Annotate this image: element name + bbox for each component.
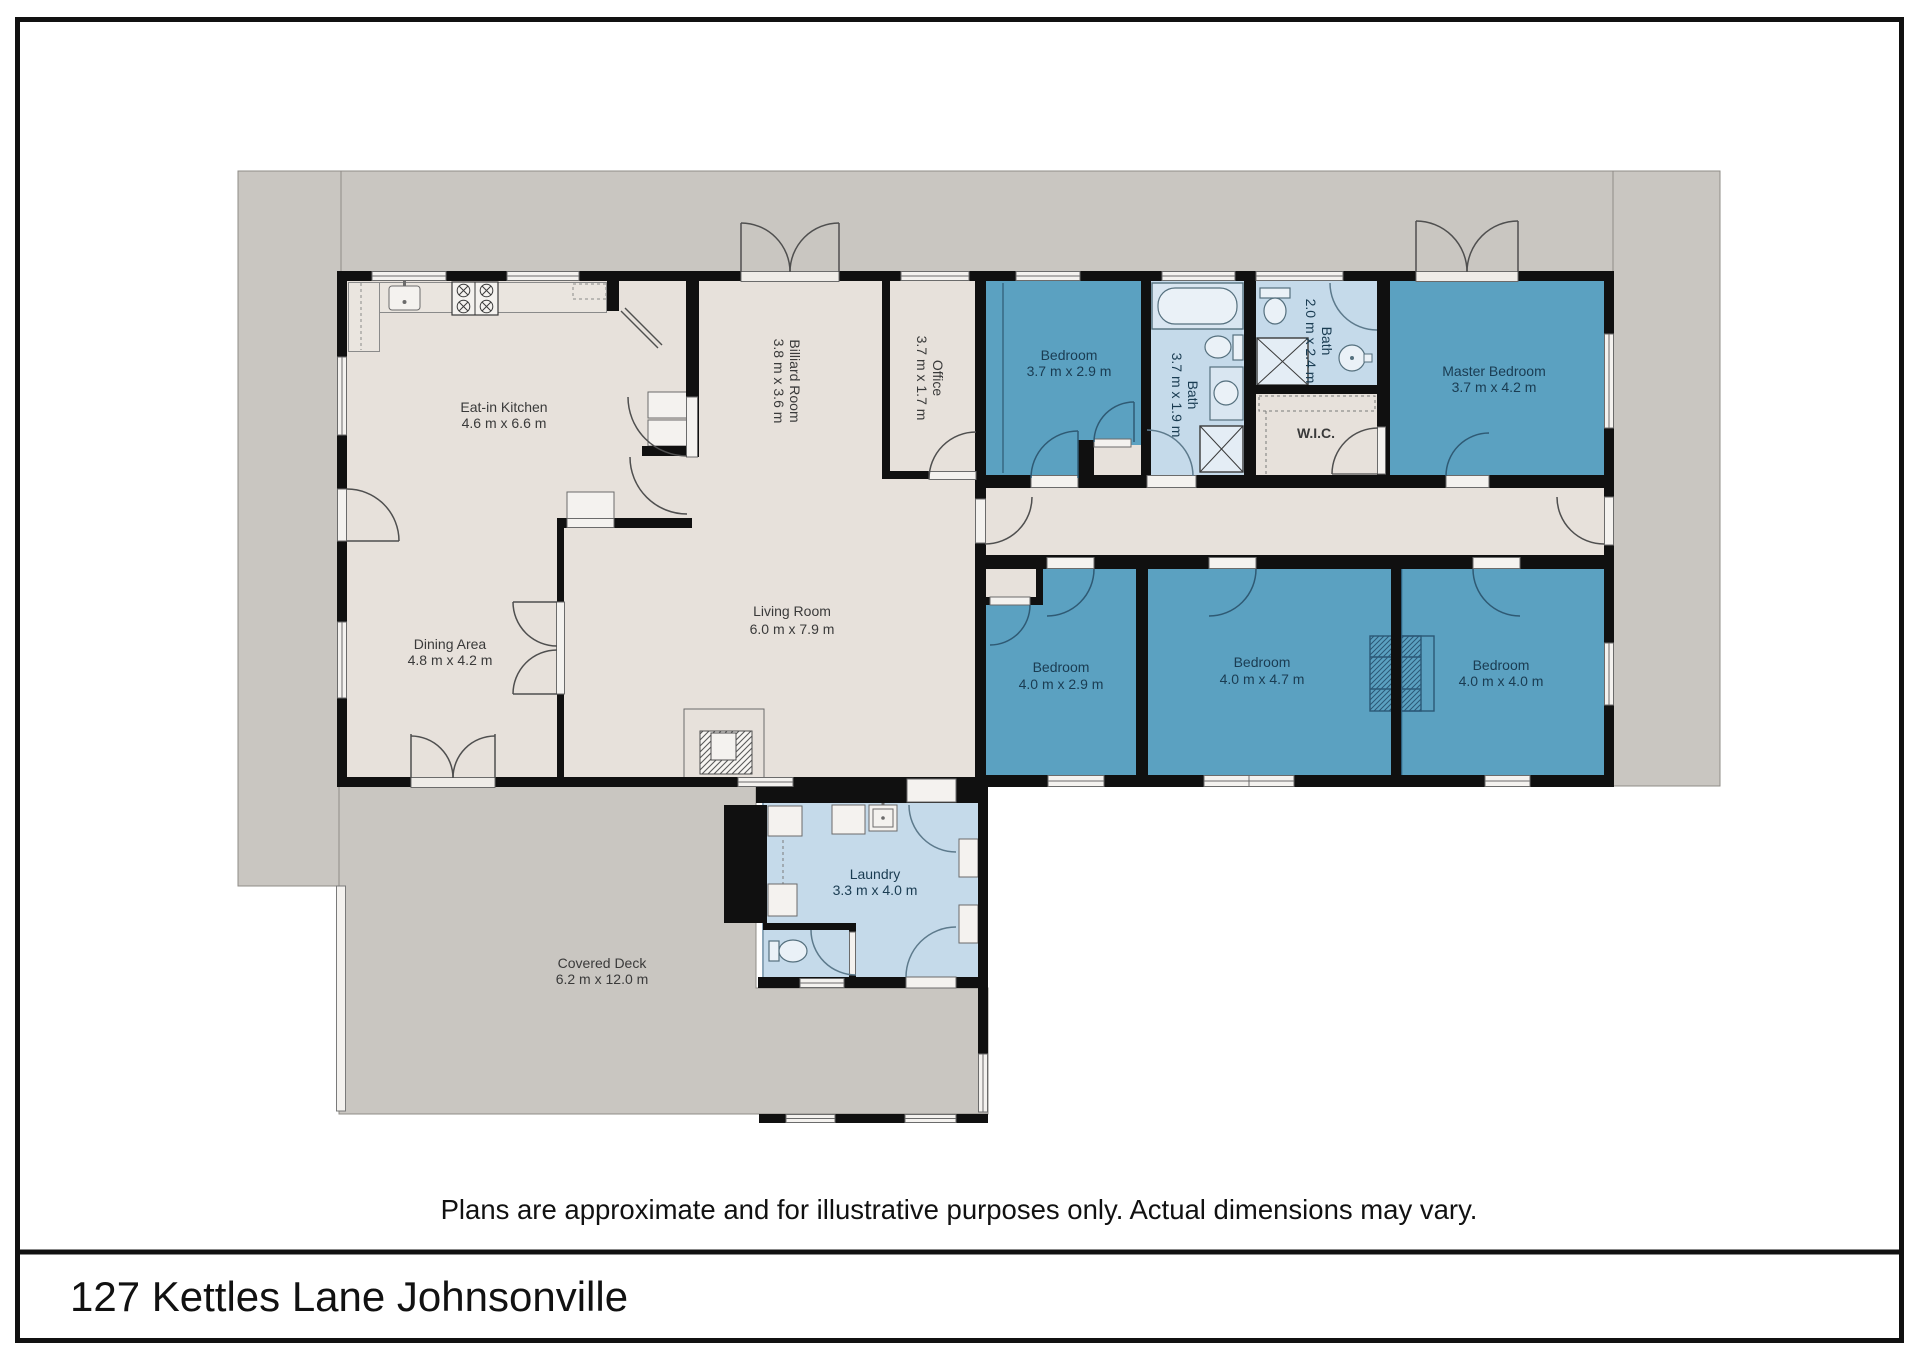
svg-text:Billiard Room: Billiard Room [787, 339, 803, 422]
svg-text:W.I.C.: W.I.C. [1297, 425, 1335, 441]
svg-text:Office: Office [930, 360, 946, 397]
svg-text:Bedroom: Bedroom [1033, 659, 1090, 675]
svg-text:3.8 m x 3.6 m: 3.8 m x 3.6 m [771, 339, 787, 424]
svg-text:Bath: Bath [1319, 327, 1335, 356]
svg-text:3.7 m x 2.9 m: 3.7 m x 2.9 m [1027, 363, 1112, 379]
svg-text:Bath: Bath [1185, 381, 1201, 410]
svg-text:6.0 m x 7.9 m: 6.0 m x 7.9 m [750, 621, 835, 637]
svg-text:Bedroom: Bedroom [1473, 657, 1530, 673]
svg-text:Living Room: Living Room [753, 603, 831, 619]
svg-text:4.8 m x 4.2 m: 4.8 m x 4.2 m [408, 652, 493, 668]
svg-text:4.0 m x 4.0 m: 4.0 m x 4.0 m [1459, 673, 1544, 689]
svg-text:4.0 m x 4.7 m: 4.0 m x 4.7 m [1220, 671, 1305, 687]
svg-text:Dining Area: Dining Area [414, 636, 487, 652]
svg-text:Bedroom: Bedroom [1041, 347, 1098, 363]
svg-text:3.7 m x 1.7 m: 3.7 m x 1.7 m [914, 336, 930, 421]
svg-text:127 Kettles Lane Johnsonville: 127 Kettles Lane Johnsonville [70, 1273, 628, 1320]
svg-text:Eat-in Kitchen: Eat-in Kitchen [460, 399, 547, 415]
svg-text:3.3 m x 4.0 m: 3.3 m x 4.0 m [833, 882, 918, 898]
svg-text:3.7 m x 1.9 m: 3.7 m x 1.9 m [1169, 353, 1185, 438]
svg-text:4.0 m x 2.9 m: 4.0 m x 2.9 m [1019, 676, 1104, 692]
svg-text:Laundry: Laundry [850, 866, 901, 882]
svg-text:Bedroom: Bedroom [1234, 654, 1291, 670]
svg-text:2.0 m x 2.4 m: 2.0 m x 2.4 m [1303, 299, 1319, 384]
svg-text:Plans are approximate and for: Plans are approximate and for illustrati… [441, 1194, 1478, 1225]
svg-text:Covered Deck: Covered Deck [558, 955, 648, 971]
svg-text:Master Bedroom: Master Bedroom [1442, 363, 1545, 379]
svg-text:3.7 m x 4.2 m: 3.7 m x 4.2 m [1452, 379, 1537, 395]
svg-text:4.6 m x 6.6 m: 4.6 m x 6.6 m [462, 415, 547, 431]
svg-text:6.2 m x 12.0 m: 6.2 m x 12.0 m [556, 971, 649, 987]
